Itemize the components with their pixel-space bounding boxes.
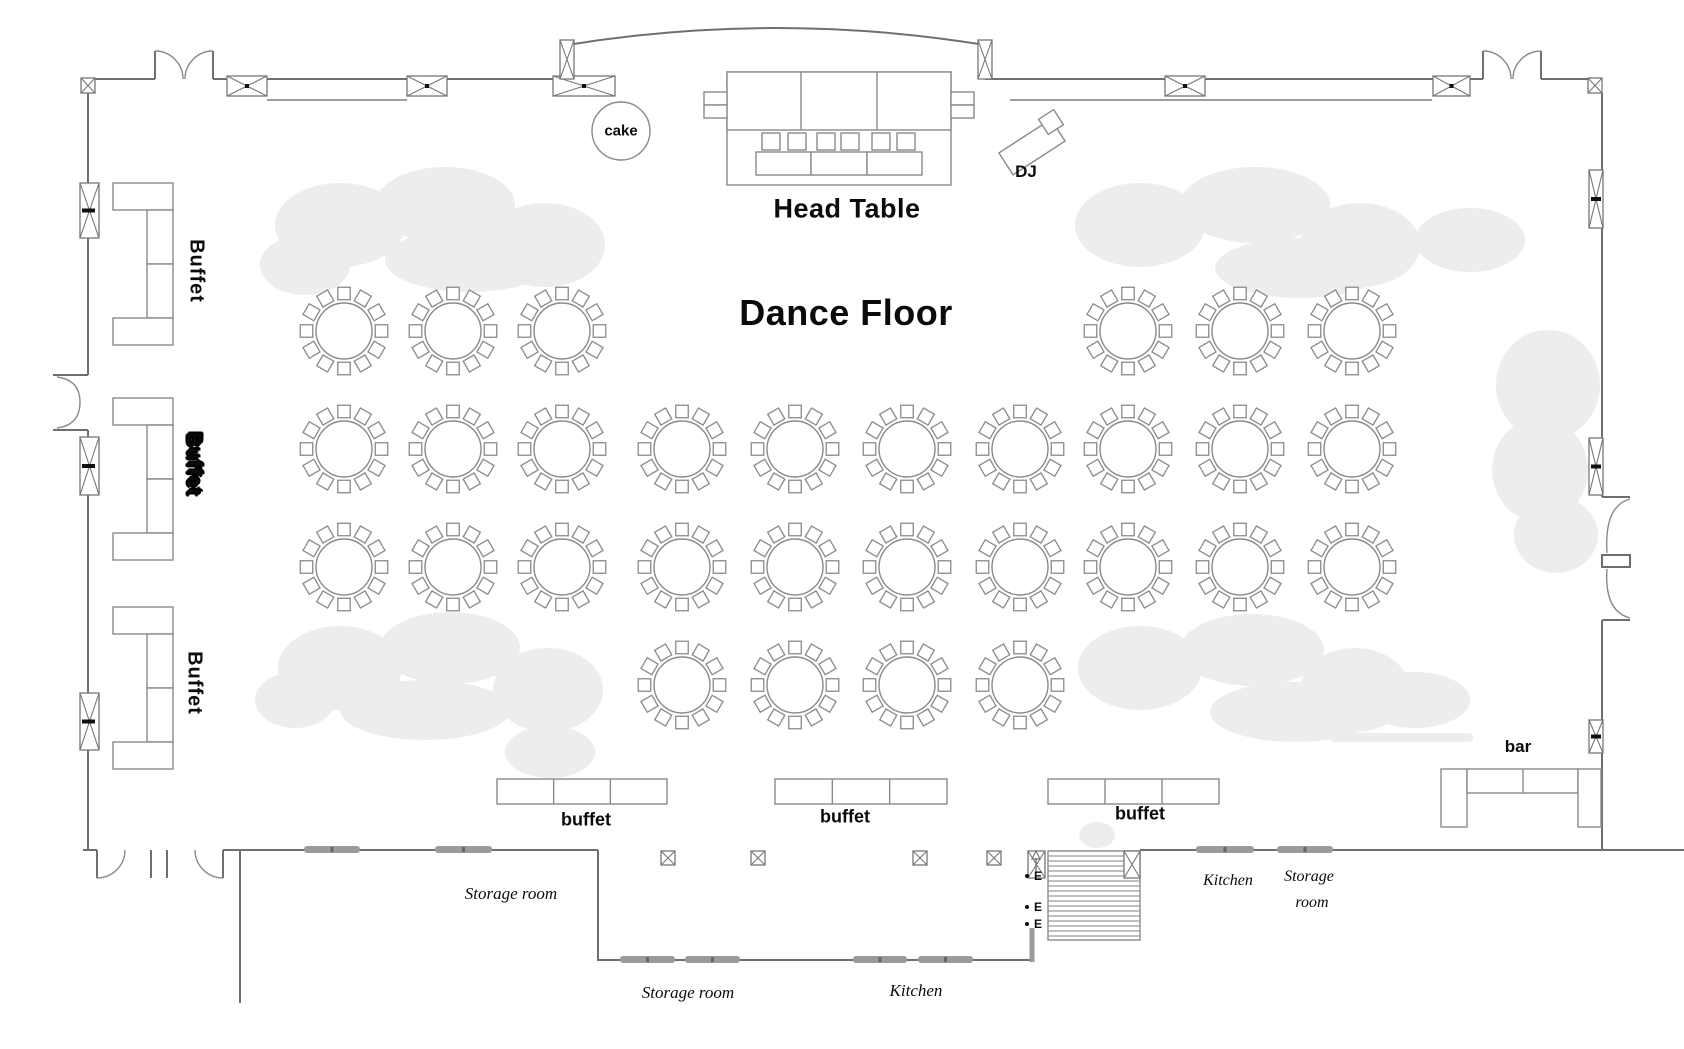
kitchen-bottom-label: Kitchen — [890, 981, 943, 1001]
head-table-label: Head Table — [773, 194, 920, 225]
head-table — [704, 72, 974, 185]
bar-counter — [1441, 769, 1601, 827]
storage-right-label-line2: room — [1295, 894, 1328, 912]
banquet-floorplan: Head Table Dance Floor cake DJ bar buffe… — [0, 0, 1684, 1049]
dance-floor-label: Dance Floor — [739, 292, 953, 334]
dj-label: DJ — [1015, 162, 1037, 182]
bar-label: bar — [1505, 737, 1531, 757]
buffet-bottom-label-3: buffet — [1115, 804, 1165, 825]
exit-label-3: E — [1034, 917, 1042, 931]
exit-label-1: E — [1034, 869, 1042, 883]
stairs — [1025, 851, 1140, 962]
door-and-column-markers — [304, 846, 1333, 963]
buffet-left-label-1: Buffet — [185, 239, 208, 303]
storage-room-left-label: Storage room — [465, 884, 557, 904]
kitchen-right-label: Kitchen — [1203, 872, 1253, 890]
floorplan-svg — [0, 0, 1684, 1049]
buffet-bottom-label-1: buffet — [561, 810, 611, 831]
storage-right-label-line1: Storage — [1284, 868, 1334, 886]
cake-label: cake — [604, 123, 637, 140]
buffet-left-label-2: Buffet — [182, 432, 205, 496]
foliage-decor — [255, 167, 1600, 848]
storage-room-bottom-label: Storage room — [642, 983, 734, 1003]
exit-label-2: E — [1034, 900, 1042, 914]
buffet-left-label-3: Buffet — [183, 651, 206, 715]
buffet-bottom-label-2: buffet — [820, 807, 870, 828]
